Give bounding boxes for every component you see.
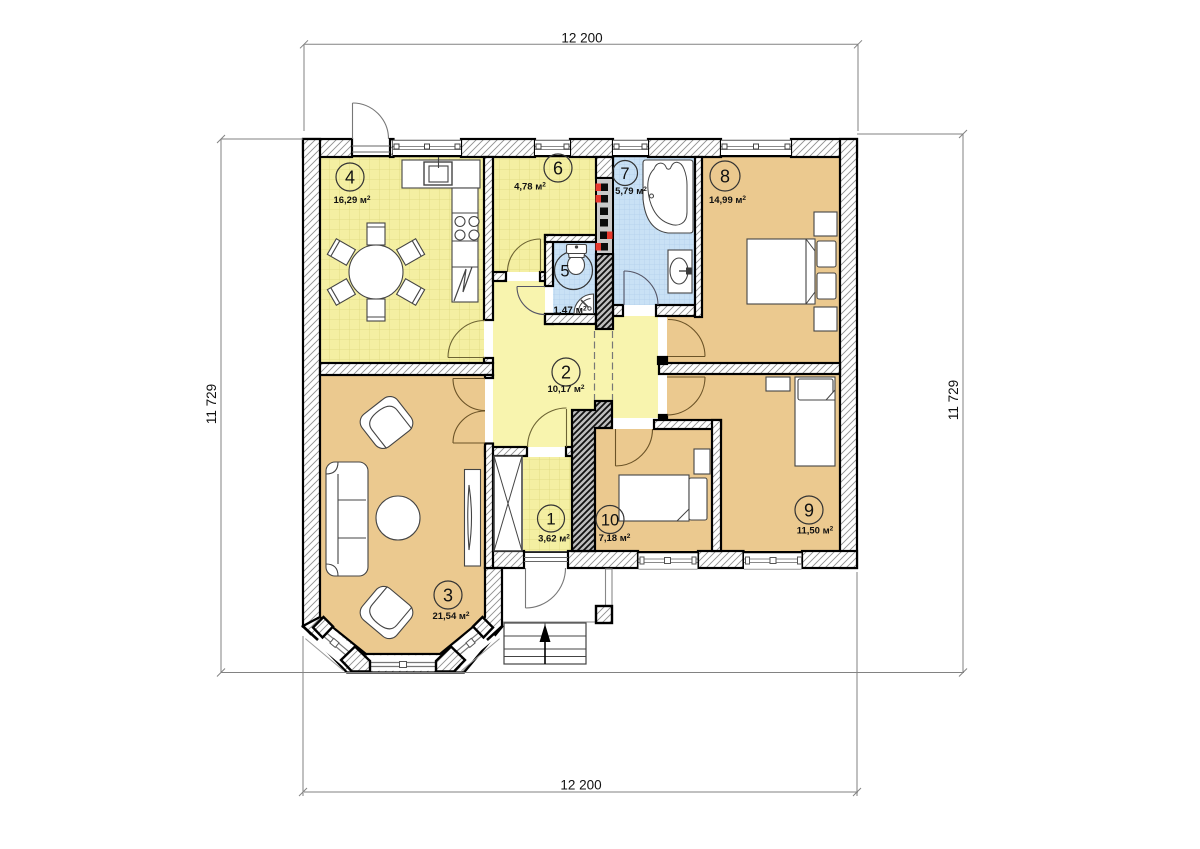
svg-text:1: 1: [546, 510, 555, 529]
svg-text:11,50 м2: 11,50 м2: [797, 526, 834, 537]
svg-text:7: 7: [620, 165, 629, 183]
svg-text:11 729: 11 729: [204, 384, 219, 424]
svg-text:4: 4: [345, 168, 355, 188]
svg-text:8: 8: [720, 167, 730, 187]
svg-text:3,62 м2: 3,62 м2: [538, 534, 570, 545]
svg-text:12 200: 12 200: [561, 31, 602, 46]
svg-text:9: 9: [804, 501, 814, 521]
svg-text:5,79 м2: 5,79 м2: [615, 186, 647, 197]
svg-text:12 200: 12 200: [560, 778, 601, 793]
svg-text:4,78 м2: 4,78 м2: [514, 182, 546, 193]
svg-text:10,17 м2: 10,17 м2: [547, 384, 584, 395]
svg-text:11 729: 11 729: [946, 380, 961, 420]
svg-text:16,29 м2: 16,29 м2: [333, 195, 370, 206]
svg-text:3: 3: [443, 586, 453, 606]
svg-text:10: 10: [601, 512, 619, 530]
svg-text:6: 6: [553, 159, 563, 179]
svg-text:5: 5: [560, 263, 569, 281]
svg-text:21,54 м2: 21,54 м2: [432, 611, 469, 622]
svg-text:14,99 м2: 14,99 м2: [709, 195, 746, 206]
svg-text:2: 2: [561, 363, 571, 383]
svg-text:1,47 м2: 1,47 м2: [553, 306, 587, 317]
svg-text:7,18 м2: 7,18 м2: [599, 533, 631, 544]
